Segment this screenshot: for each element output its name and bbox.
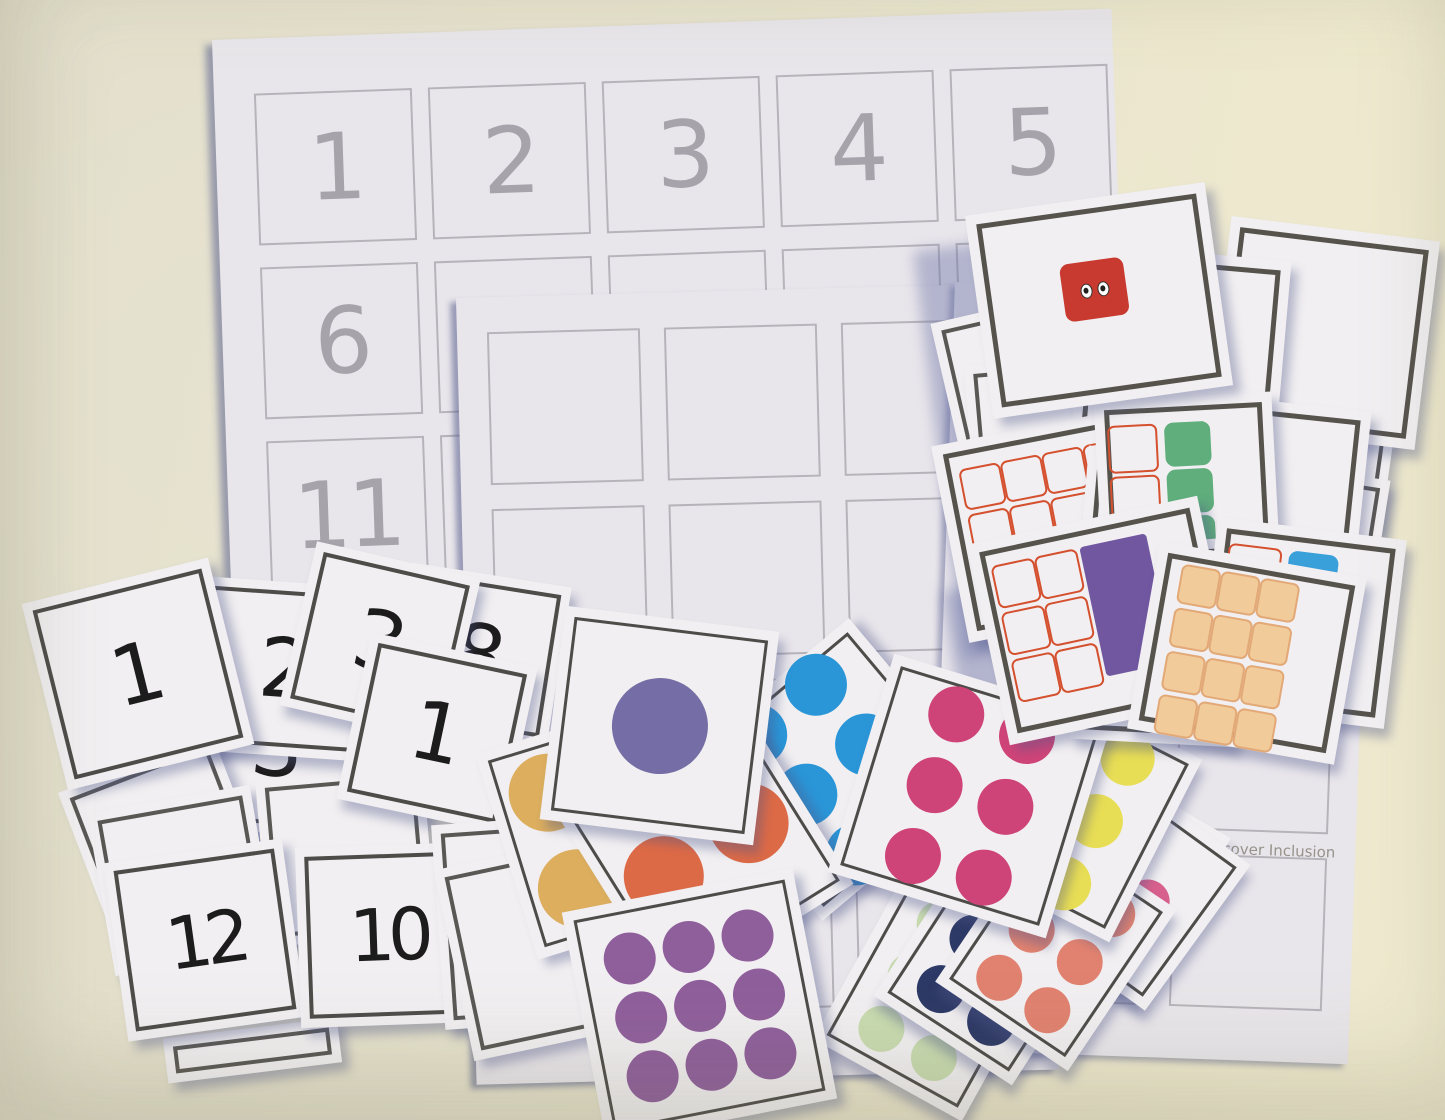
counting-dot [949, 843, 1019, 913]
counting-dot [716, 905, 777, 966]
photo-surface: 1 2 3 4 5 6 11 [0, 0, 1445, 1120]
number-card: 12 [103, 838, 306, 1041]
cell-number: 1 [306, 112, 364, 221]
counting-dot [622, 1045, 683, 1106]
grid-cell: 3 [602, 76, 765, 233]
counting-dot [739, 1022, 800, 1083]
counting-dot [606, 672, 713, 779]
cell-number: 6 [312, 286, 370, 395]
cell-number: 3 [654, 100, 712, 209]
counting-dot [921, 679, 991, 749]
tenframe-card [1127, 541, 1367, 765]
grid-cell [487, 328, 644, 485]
number-block [1059, 256, 1130, 322]
grid-cell: 6 [260, 262, 423, 419]
counting-dot [970, 772, 1040, 842]
counting-dot [610, 986, 671, 1047]
cell-number: 2 [480, 106, 538, 215]
dot-card [562, 868, 838, 1120]
counting-dot [599, 928, 660, 989]
grid-cell: 4 [776, 70, 939, 227]
counting-dot [1048, 930, 1112, 994]
counting-dot [1016, 978, 1080, 1042]
cell-number: 4 [828, 94, 886, 203]
counting-dot [658, 916, 719, 977]
grid-cell: 2 [428, 82, 591, 239]
number-block [1164, 421, 1212, 467]
counting-dot [878, 821, 948, 891]
block-eyes [1059, 256, 1130, 322]
grid-cell [664, 324, 821, 481]
grid-cell: 1 [254, 88, 417, 245]
counting-dot [728, 964, 789, 1025]
block-card [965, 182, 1233, 419]
dot-card [540, 606, 780, 846]
cell-number: 5 [1002, 88, 1060, 197]
counting-dot [968, 945, 1032, 1009]
counting-dot [680, 1034, 741, 1095]
counting-dot [669, 975, 730, 1036]
counting-dot [900, 750, 970, 820]
